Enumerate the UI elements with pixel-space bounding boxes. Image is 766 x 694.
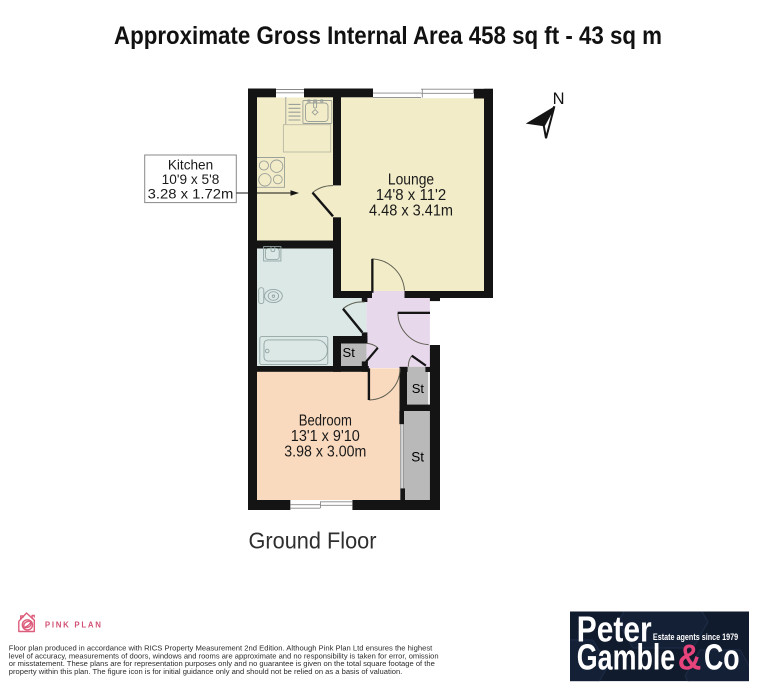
svg-text:Approximate Gross Internal Are: Approximate Gross Internal Area 458 sq f… [114,22,662,50]
svg-text:Kitchen: Kitchen [168,158,213,173]
svg-text:Gamble: Gamble [577,636,675,677]
svg-text:PINK PLAN: PINK PLAN [45,619,103,629]
svg-text:Ground Floor: Ground Floor [249,527,377,553]
svg-text:14'8 x 11'2: 14'8 x 11'2 [376,187,447,204]
svg-text:Bedroom: Bedroom [299,412,352,429]
svg-text:N: N [553,90,565,108]
svg-text:3.28 x 1.72m: 3.28 x 1.72m [148,186,234,201]
svg-text:St: St [411,450,424,465]
svg-text:10'9 x 5'8: 10'9 x 5'8 [162,172,220,187]
svg-text:property within this plan. The: property within this plan. The figure ic… [9,667,403,676]
svg-text:&: & [678,636,702,677]
svg-text:3.98 x 3.00m: 3.98 x 3.00m [284,444,366,461]
svg-text:Co: Co [704,636,740,677]
svg-text:13'1 x 9'10: 13'1 x 9'10 [291,428,360,445]
svg-text:St: St [343,345,356,360]
svg-text:4.48 x 3.41m: 4.48 x 3.41m [369,203,453,220]
svg-text:St: St [412,381,425,396]
